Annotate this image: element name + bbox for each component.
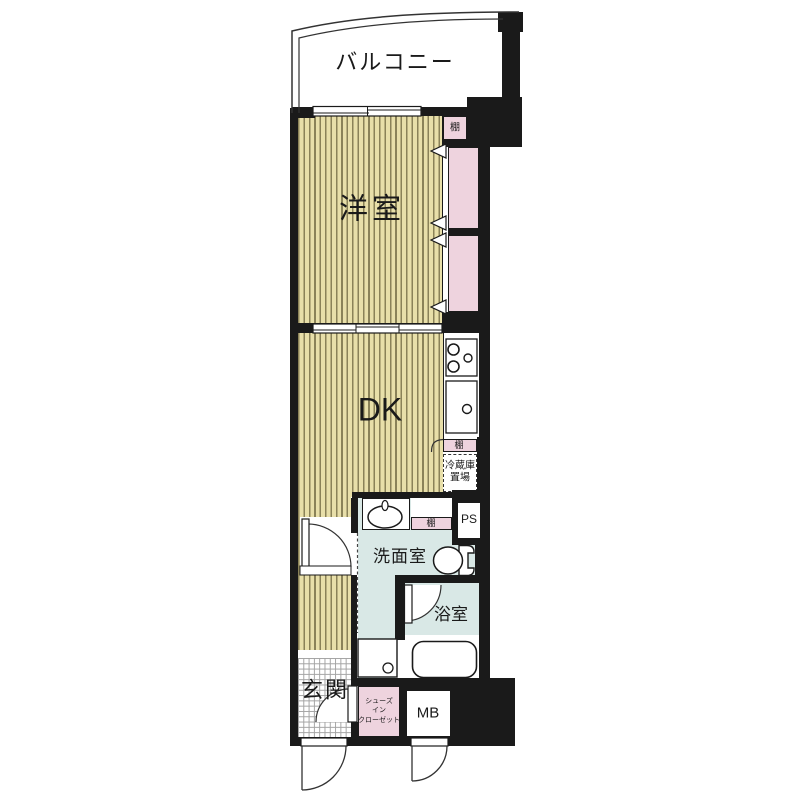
wall xyxy=(502,30,520,97)
washroom-label: 洗面室 xyxy=(373,547,427,567)
western-room-label: 洋室 xyxy=(339,193,405,226)
wall xyxy=(290,323,443,333)
wall xyxy=(451,678,515,746)
closet-lower xyxy=(448,235,479,312)
wall xyxy=(406,678,451,690)
wall xyxy=(477,437,490,498)
wall xyxy=(443,140,467,147)
wall xyxy=(467,97,522,147)
washroom-slide-door-area xyxy=(351,533,358,575)
closet-upper xyxy=(448,147,479,229)
fridge-space-label: 冷蔵庫 置場 xyxy=(445,461,475,484)
wall xyxy=(448,229,479,235)
bathroom-label: 浴室 xyxy=(434,605,468,625)
shoe-closet-line3: クローゼット xyxy=(358,716,400,725)
ps-label: PS xyxy=(461,513,477,527)
meter-box-label: MB xyxy=(417,704,440,721)
wall xyxy=(395,583,405,640)
wall xyxy=(420,107,467,116)
shoe-closet-label: シューズ イン クローゼット xyxy=(358,697,400,725)
wall xyxy=(292,107,315,118)
wall xyxy=(395,575,490,583)
shoe-closet-line1: シューズ xyxy=(358,697,400,706)
wall xyxy=(290,108,298,746)
wall xyxy=(479,583,490,686)
wall xyxy=(351,575,357,686)
entrance-step xyxy=(298,650,351,658)
floorplan: バルコニー 棚 洋室 DK 棚 冷蔵庫 置場 PS 棚 洗面室 浴室 玄関 シュ… xyxy=(0,0,800,800)
kitchen-area xyxy=(443,333,479,439)
hall-door-area xyxy=(300,517,351,575)
wall xyxy=(479,147,490,437)
wall xyxy=(443,312,488,333)
bathtub-area xyxy=(405,635,479,678)
washroom-shelf-label: 棚 xyxy=(426,518,435,528)
washroom-top-patch xyxy=(411,498,452,517)
wall xyxy=(290,737,515,746)
entrance-label: 玄関 xyxy=(301,677,349,702)
fridge-label-line1: 冷蔵庫 xyxy=(445,461,475,473)
kitchen-shelf-label: 棚 xyxy=(454,440,463,450)
wall xyxy=(351,498,358,533)
washroom-floor-lower xyxy=(358,578,395,678)
top-shelf-label: 棚 xyxy=(450,122,460,134)
wall xyxy=(498,12,523,32)
balcony-label: バルコニー xyxy=(335,49,455,74)
washbasin-counter xyxy=(362,498,410,530)
fridge-label-line2: 置場 xyxy=(445,472,475,484)
dk-label: DK xyxy=(358,392,402,429)
shoe-closet-line2: イン xyxy=(358,706,400,715)
